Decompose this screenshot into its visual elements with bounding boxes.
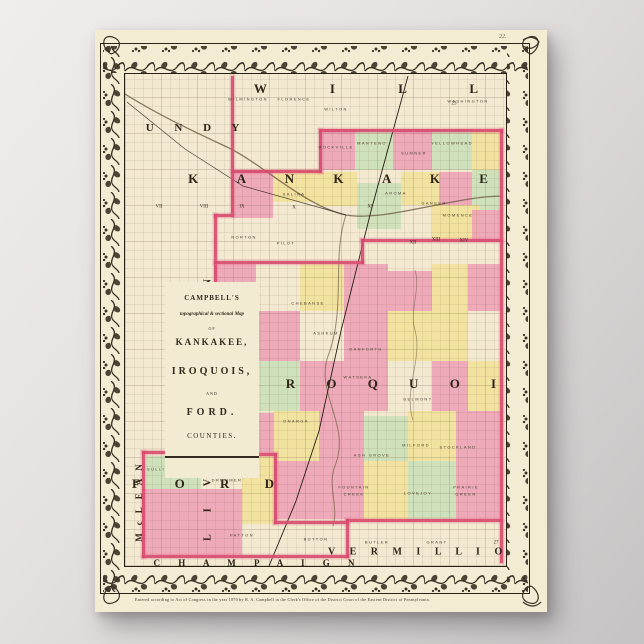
township-label: CHEBANSE: [291, 301, 324, 306]
township-label: ASH GROVE: [354, 453, 390, 458]
township-label: DANFORTH: [349, 347, 382, 352]
township-patch: [142, 489, 242, 555]
frame-band-right: [507, 46, 528, 592]
township-label: FOUNTAIN: [338, 485, 369, 490]
cartouche-of: OF: [165, 326, 259, 331]
township-label: SUMNER: [401, 151, 427, 156]
township-patch: [432, 311, 468, 361]
county-label: G R U N D Y: [124, 122, 248, 134]
cartouche-counties: COUNTIES.: [165, 432, 259, 440]
cartouche-publisher: CAMPBELL'S: [165, 294, 259, 302]
township-patch: [432, 129, 472, 170]
township-label: AROMA: [385, 191, 407, 196]
county-label: I R O Q U O I S: [249, 376, 507, 392]
frame-band-left: [103, 46, 124, 592]
map-poster: W I L LG R U N D YK A N K A K E EI R O Q…: [95, 30, 547, 612]
frame-band-bottom: [103, 565, 528, 592]
township-label: GREEN: [455, 492, 476, 497]
township-patch: [355, 129, 393, 170]
township-patch: [388, 311, 432, 361]
county-boundary-line: [500, 129, 503, 563]
township-label: ONARGA: [283, 419, 309, 424]
range-numeral: XIII: [432, 238, 441, 243]
cartouche-iroquois: IROQUOIS,: [165, 366, 259, 377]
township-label: NORTON: [231, 235, 257, 240]
township-label: GANEER: [421, 201, 446, 206]
range-numeral: X: [292, 206, 296, 211]
township-patch: [344, 264, 388, 311]
county-boundary-line: [319, 129, 322, 173]
township-label: BELMONT: [403, 397, 432, 402]
township-label: LOVEJOY: [404, 491, 432, 496]
county-boundary-line: [214, 214, 234, 217]
township-patch: [432, 264, 468, 311]
township-label: CREEK: [344, 492, 365, 497]
title-cartouche: CAMPBELL'S topographical & sectional Map…: [165, 282, 259, 478]
cartouche-ford: FORD.: [165, 407, 259, 418]
township-label: WILMINGTON: [228, 97, 268, 102]
county-label: W I L L: [254, 81, 507, 97]
range-numeral: IX: [239, 205, 244, 210]
township-patch: [388, 271, 432, 311]
township-label: PATTON: [230, 533, 254, 538]
county-label: K A N K A K E E: [188, 171, 507, 187]
range-numeral: XI: [367, 205, 372, 210]
county-boundary-line: [319, 129, 503, 132]
range-numeral: XIV: [460, 239, 469, 244]
township-label: SALINA: [283, 192, 306, 197]
township-label: ROCKVILLE: [318, 145, 353, 150]
cartouche-rule: [165, 456, 259, 458]
township-label: PILOT: [277, 241, 296, 246]
county-label: McLEAN: [134, 456, 144, 542]
township-label: GRANT: [427, 540, 448, 545]
township-patch: [456, 461, 500, 519]
copyright-credit-line: Entered according to Act of Congress in …: [135, 597, 430, 602]
township-label: YELLOWHEAD: [431, 141, 473, 146]
range-numeral: 23: [452, 102, 457, 107]
frame-band-top: [103, 46, 528, 73]
township-label: WILTON: [324, 107, 348, 112]
township-label: WATSEKA: [344, 375, 373, 380]
township-patch: [408, 411, 456, 461]
township-label: BUTTON: [304, 537, 329, 542]
plate-number: 22.: [499, 34, 507, 40]
township-patch: [472, 210, 500, 241]
range-numeral: VII: [156, 205, 163, 210]
range-numeral: VIII: [200, 205, 209, 210]
cartouche-subtitle: topographical & sectional Map: [165, 312, 259, 317]
township-patch: [364, 461, 408, 519]
township-patch: [319, 461, 364, 519]
township-label: PRAIRIE: [453, 485, 479, 490]
township-patch: [456, 411, 500, 461]
township-label: DRUMMER: [212, 478, 243, 483]
township-label: FLORENCE: [278, 97, 311, 102]
cartouche-kankakee: KANKAKEE,: [165, 337, 259, 347]
range-numeral: XII: [410, 241, 417, 246]
map-area: W I L LG R U N D YK A N K A K E EI R O Q…: [124, 73, 507, 567]
township-patch: [393, 129, 432, 170]
county-label: V E R M I L L I O N: [328, 547, 507, 558]
county-label: C H A M P A I G N: [153, 558, 362, 567]
range-numeral: 27: [494, 541, 499, 546]
township-label: STOCKLAND: [440, 445, 477, 450]
county-boundary-line: [346, 519, 503, 522]
township-label: BUTLER: [365, 540, 389, 545]
township-label: MOMENCE: [443, 213, 474, 218]
county-boundary-line: [214, 261, 364, 264]
township-label: ASHKUM: [313, 331, 339, 336]
county-boundary-line: [361, 239, 364, 264]
cartouche-and: AND: [165, 391, 259, 396]
township-patch: [344, 311, 388, 361]
township-patch: [319, 129, 355, 170]
township-patch: [472, 129, 500, 170]
township-patch: [468, 264, 500, 311]
county-boundary-line: [274, 521, 349, 524]
township-patch: [256, 311, 300, 361]
township-label: MILFORD: [402, 443, 430, 448]
township-label: MANTENO: [357, 141, 387, 146]
